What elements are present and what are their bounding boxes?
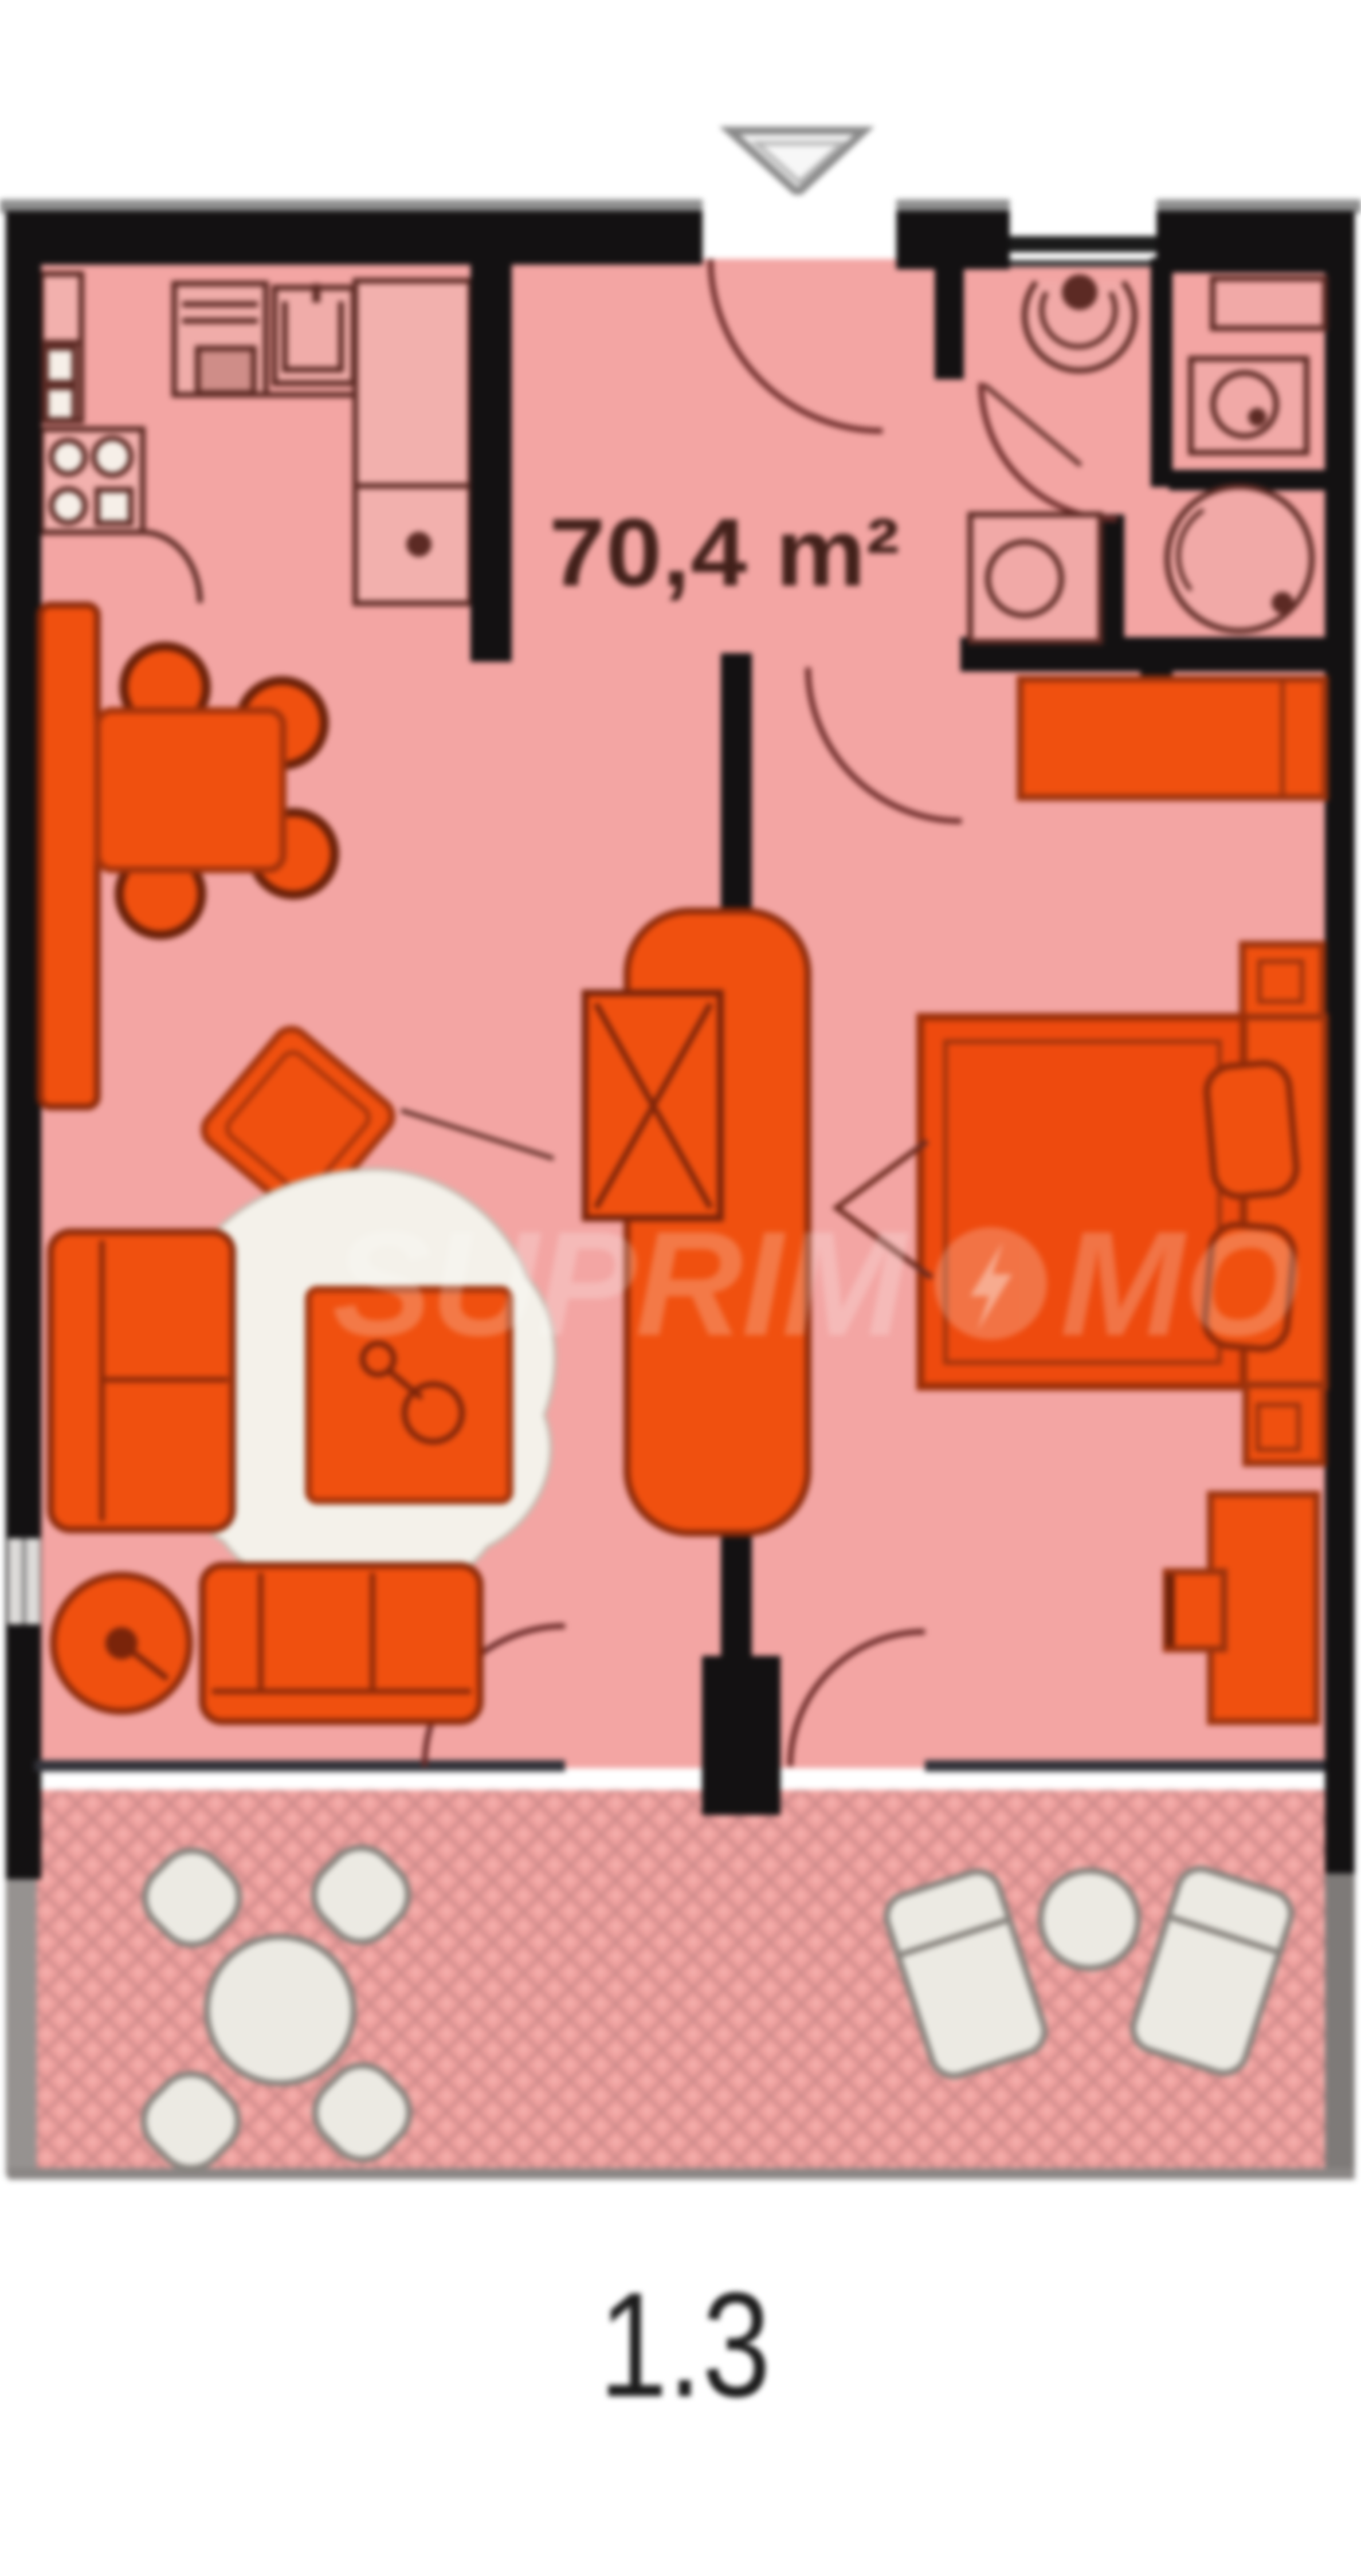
- svg-text:MO: MO: [1060, 1201, 1300, 1367]
- svg-text:1.3: 1.3: [599, 2262, 771, 2428]
- svg-text:70,4 m²: 70,4 m²: [549, 498, 900, 606]
- svg-text:SUPRIM: SUPRIM: [332, 1201, 910, 1367]
